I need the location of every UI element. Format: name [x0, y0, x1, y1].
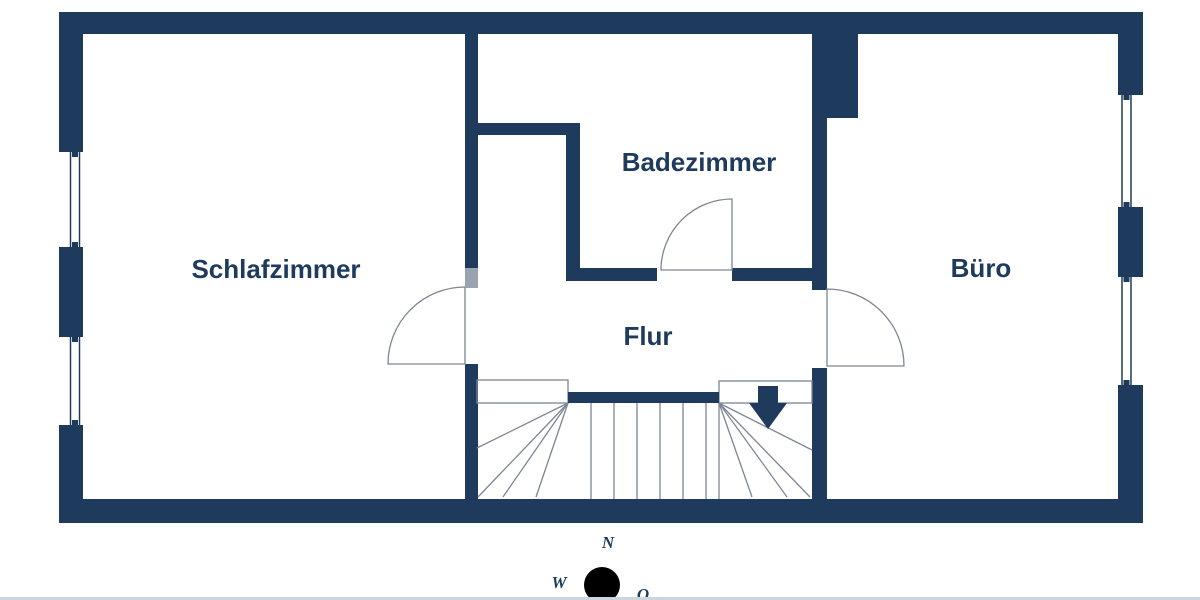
window-right-upper — [1118, 95, 1143, 207]
door-bedroom-jamb — [465, 262, 478, 268]
wall-bath-south-west — [566, 268, 657, 281]
compass-label-west: W — [551, 573, 568, 592]
stairs-down-arrow-icon — [749, 386, 787, 429]
wall-bedroom-stairs — [465, 364, 478, 499]
room-label-schlafzimmer: Schlafzimmer — [191, 254, 360, 284]
wall-shower-top — [465, 123, 577, 135]
wall-shower-side — [566, 123, 580, 281]
window-right-lower — [1118, 277, 1143, 385]
window-left-lower — [59, 337, 83, 425]
wall-office-stairs — [812, 368, 827, 499]
staircase — [477, 380, 812, 499]
room-label-buero: Büro — [951, 253, 1012, 283]
wall-hall-office — [812, 34, 827, 290]
wall-top — [59, 12, 1143, 34]
stair-divider-wall — [568, 392, 719, 403]
room-label-flur: Flur — [623, 321, 672, 351]
door-bedroom — [388, 262, 478, 364]
wall-right — [1118, 12, 1143, 523]
compass-label-north: N — [601, 533, 615, 552]
wall-left — [59, 12, 83, 523]
compass-rose-icon: N W O — [551, 533, 649, 600]
wall-bedroom-hall-upper — [465, 34, 478, 263]
door-bedroom-leaf — [465, 268, 478, 288]
room-label-badezimmer: Badezimmer — [622, 147, 777, 177]
door-office — [827, 289, 904, 366]
door-bathroom — [661, 199, 732, 270]
wall-bottom — [59, 499, 1143, 523]
window-left-upper — [59, 152, 83, 247]
floor-plan: Schlafzimmer Badezimmer Flur Büro — [0, 0, 1200, 600]
wall-bath-south-east — [732, 268, 812, 281]
